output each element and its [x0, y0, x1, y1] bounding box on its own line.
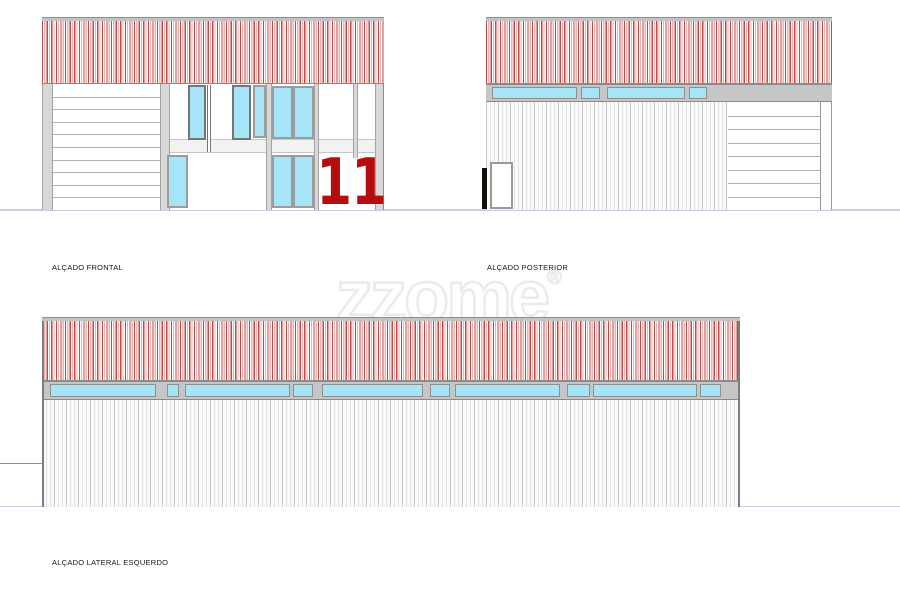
garage-door-panel-line — [728, 197, 820, 198]
front-elevation: 11 — [42, 17, 384, 210]
clerestory-window — [581, 87, 600, 99]
window-mullion — [291, 157, 295, 206]
front-window-jamb — [207, 85, 212, 152]
clerestory-window — [593, 384, 697, 397]
posterior-wall-cladding — [486, 102, 728, 210]
front-window-lower-single — [167, 155, 188, 208]
clerestory-window — [293, 384, 313, 397]
garage-door-panel-line — [728, 170, 820, 171]
clerestory-window — [607, 87, 685, 99]
front-window-narrow — [253, 85, 266, 138]
lateral-clerestory-band — [42, 381, 740, 400]
garage-door-panel-line — [53, 160, 160, 161]
front-garage-door — [53, 84, 160, 210]
garage-door-panel-line — [53, 122, 160, 123]
garage-door-panel-line — [53, 197, 160, 198]
garage-door-panel-line — [53, 97, 160, 98]
garage-door-panel-line — [728, 156, 820, 157]
drawing-canvas: zzome® 11 — [0, 0, 900, 597]
garage-door-panel-line — [728, 143, 820, 144]
posterior-corner-post — [482, 168, 487, 209]
clerestory-window — [700, 384, 721, 397]
garage-door-panel-line — [728, 116, 820, 117]
clerestory-window — [567, 384, 590, 397]
garage-door-panel-line — [53, 109, 160, 110]
clerestory-window — [455, 384, 560, 397]
garage-door-panel-line — [53, 185, 160, 186]
lateral-left-edge — [42, 321, 44, 507]
label-lateral-elevation: ALÇADO LATERAL ESQUERDO — [52, 558, 168, 567]
front-window-lower-double — [272, 155, 314, 208]
garage-door-panel-line — [53, 172, 160, 173]
front-window-upper-double — [272, 86, 314, 139]
lateral-roof-cladding — [42, 321, 740, 381]
posterior-pilaster-right — [820, 102, 832, 210]
clerestory-window — [492, 87, 577, 99]
garage-door-panel-line — [53, 147, 160, 148]
clerestory-window — [167, 384, 179, 397]
label-front-elevation: ALÇADO FRONTAL — [52, 263, 123, 272]
posterior-elevation — [486, 17, 832, 210]
lateral-right-edge — [738, 321, 740, 507]
garage-door-panel-line — [728, 183, 820, 184]
label-posterior-elevation: ALÇADO POSTERIOR — [487, 263, 568, 272]
posterior-entry-door — [490, 162, 513, 209]
front-pilaster-left — [42, 84, 53, 210]
clerestory-window — [689, 87, 707, 99]
street-number: 11 — [316, 157, 386, 209]
front-roof-cladding — [42, 21, 384, 84]
clerestory-window — [50, 384, 156, 397]
clerestory-window — [185, 384, 290, 397]
front-window-tall-2 — [232, 85, 251, 140]
posterior-clerestory-band — [486, 84, 832, 102]
clerestory-window — [430, 384, 450, 397]
lateral-wall-cladding — [42, 400, 740, 507]
lateral-elevation — [42, 317, 740, 507]
garage-door-panel-line — [53, 134, 160, 135]
front-window-tall-1 — [188, 85, 206, 140]
posterior-garage-door — [728, 102, 820, 210]
garage-door-panel-line — [728, 129, 820, 130]
annex-roof-line — [0, 463, 43, 465]
clerestory-window — [322, 384, 423, 397]
window-mullion — [291, 88, 295, 137]
posterior-roof-cladding — [486, 21, 832, 84]
